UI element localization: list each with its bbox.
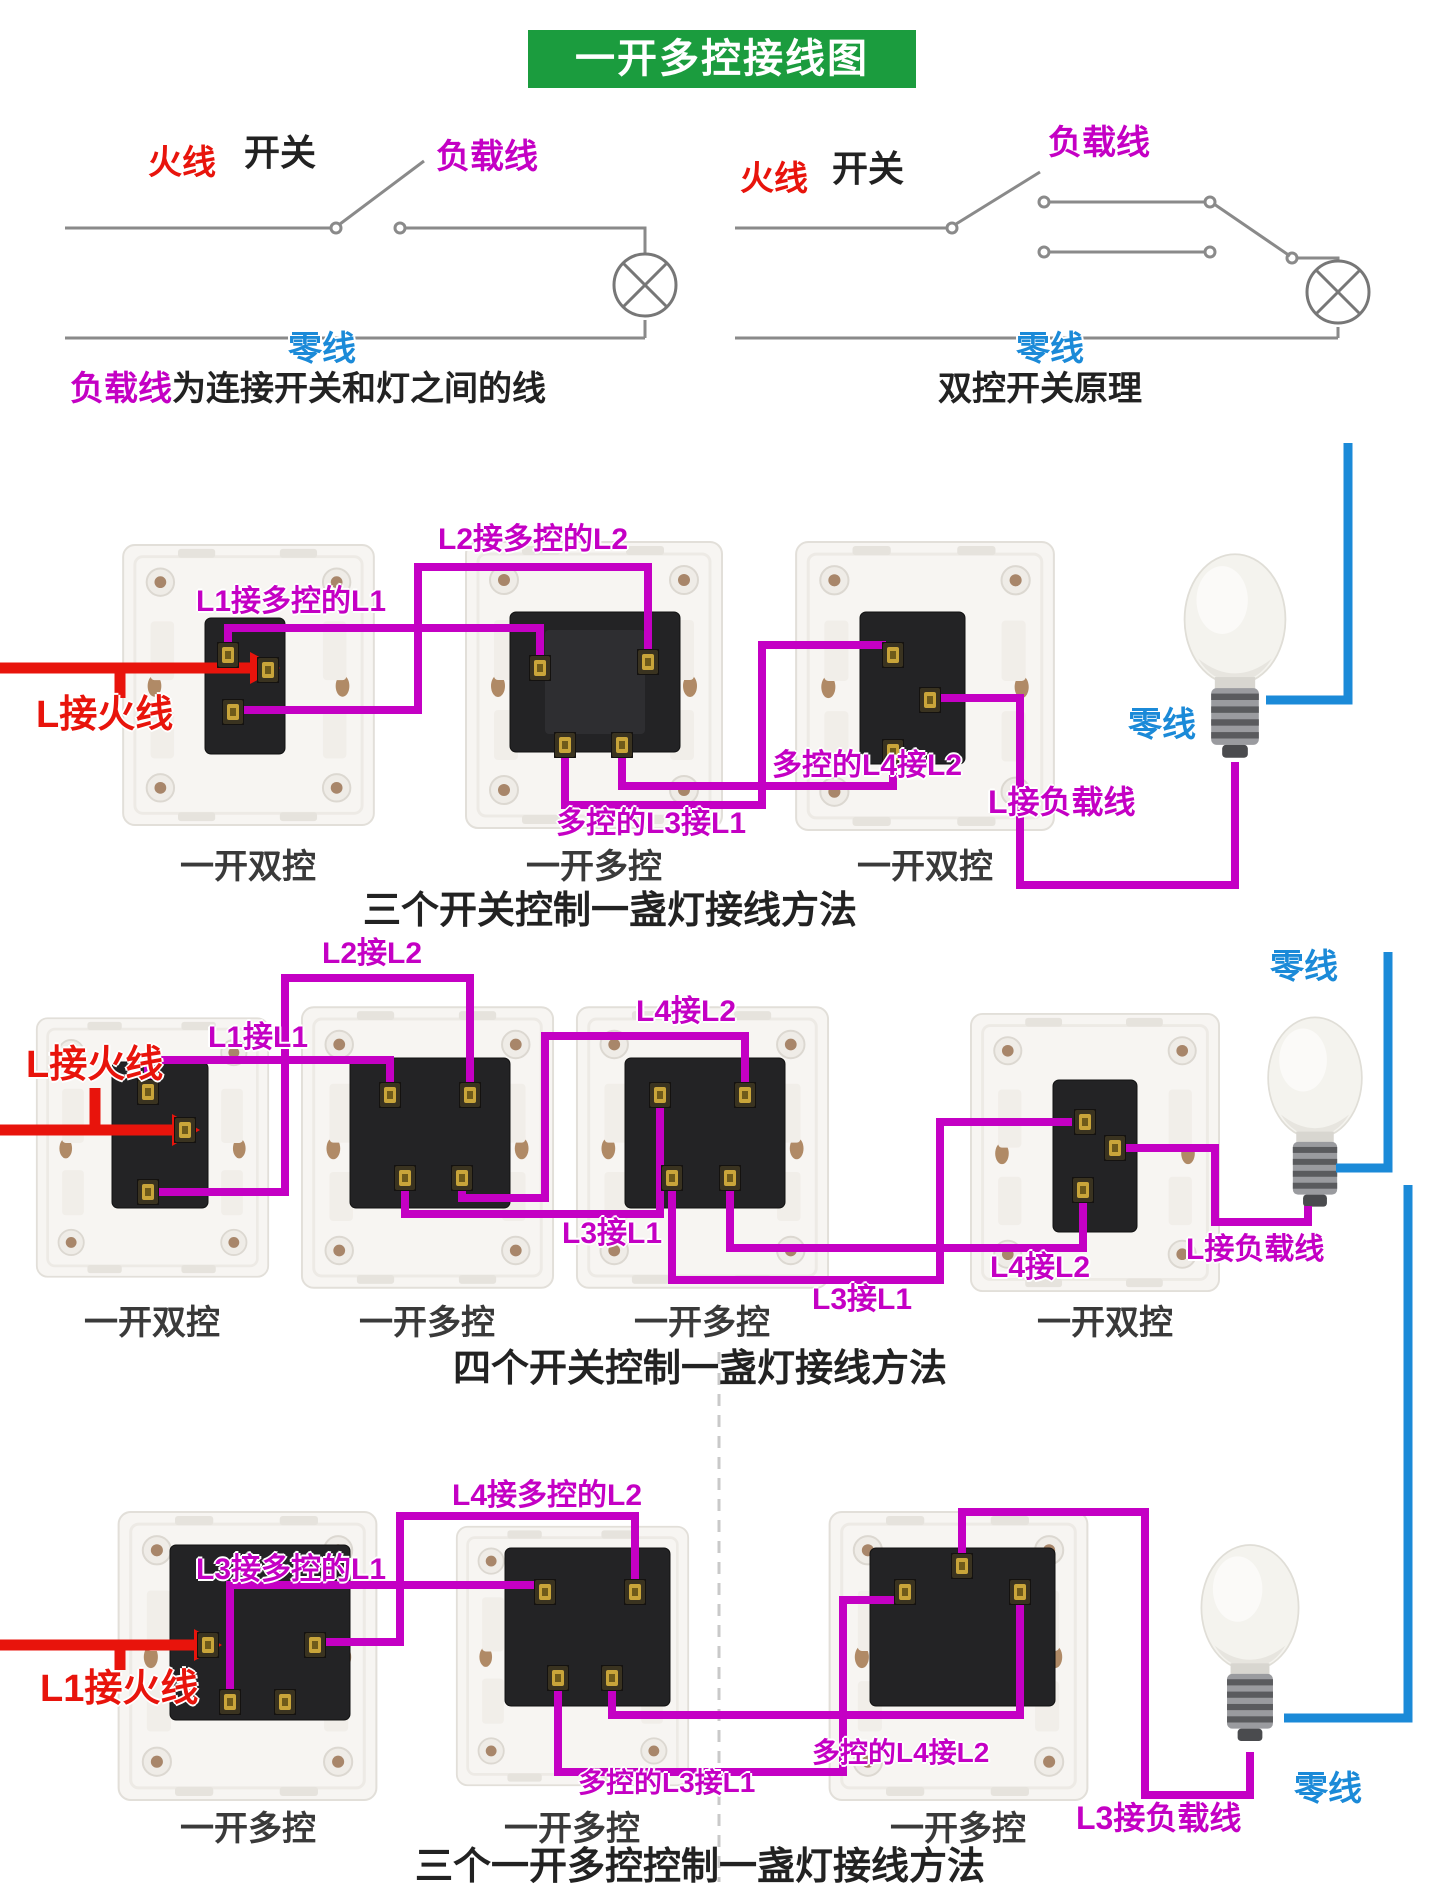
wire-label-l4: L4接多控的L2 <box>452 1480 642 1512</box>
wire-label-load: L3接负载线 <box>1076 1802 1241 1836</box>
wire-label-l3b: 多控的L3接L1 <box>578 1768 755 1797</box>
terminal-icon <box>1074 1109 1096 1135</box>
wire-label-neutral: 零线 <box>1294 1772 1362 1808</box>
switch-caption: 一开双控 <box>84 1306 220 1342</box>
section-caption: 三个开关控制一盏灯接线方法 <box>363 892 857 932</box>
terminal-icon <box>611 732 633 758</box>
bulb-icon <box>1201 1545 1298 1741</box>
switch-caption: 一开多控 <box>504 1812 640 1848</box>
terminal-icon <box>1104 1135 1126 1161</box>
schematic-right-caption: 双控开关原理 <box>938 372 1142 408</box>
neutral-wire <box>1266 443 1348 700</box>
terminal-icon <box>601 1665 623 1691</box>
terminal-icon <box>274 1689 296 1715</box>
wire-label-load: L接负载线 <box>988 786 1136 820</box>
wire-label-l3: 多控的L3接L1 <box>556 808 746 840</box>
wire-label-l2: L2接多控的L2 <box>438 524 628 556</box>
wire-label-l2: L2接L2 <box>322 938 422 970</box>
lamp-symbol <box>614 254 676 316</box>
terminal-icon <box>304 1632 326 1658</box>
switch-module <box>860 612 965 764</box>
schematic-left-load-label: 负载线 <box>436 140 538 176</box>
terminal-icon <box>649 1082 671 1108</box>
terminal-icon <box>394 1165 416 1191</box>
wire-label-load: L接负载线 <box>1186 1234 1324 1266</box>
terminal-icon <box>547 1665 569 1691</box>
terminal-icon <box>137 1179 159 1205</box>
terminal-icon <box>734 1082 756 1108</box>
wire-label-l4b: L4接L2 <box>990 1252 1090 1284</box>
terminal-icon <box>379 1082 401 1108</box>
page-title: 一开多控接线图 <box>528 30 916 88</box>
schematic-right-switch-label: 开关 <box>832 150 904 188</box>
wire-label-l4b: 多控的L4接L2 <box>812 1738 989 1767</box>
wiring-diagram-page: 一开多控接线图 火线 开关 负载线 零线 负载线为连接开关和灯之间的线 火线 开… <box>0 0 1440 1888</box>
wire-label-live: L接火线 <box>26 1046 163 1086</box>
schematic-two-way-switch <box>735 172 1369 338</box>
wire-label-l3: L3接多控的L1 <box>196 1554 386 1586</box>
terminal-icon <box>637 649 659 675</box>
wire-label-l3a: L3接L1 <box>562 1218 662 1250</box>
section-caption: 三个一开多控控制一盏灯接线方法 <box>415 1848 985 1888</box>
switch-module <box>505 1548 670 1706</box>
wire-label-live: L接火线 <box>36 696 173 736</box>
schematic-right-live-label: 火线 <box>740 162 808 198</box>
switch-rocker <box>545 630 645 734</box>
schematic-left-switch-label: 开关 <box>244 134 316 172</box>
switch-caption: 一开多控 <box>180 1812 316 1848</box>
terminal-icon <box>529 655 551 681</box>
wire-label-l4: 多控的L4接L2 <box>772 750 962 782</box>
wire-label-l1: L1接多控的L1 <box>196 586 386 618</box>
switch-caption: 一开双控 <box>857 850 993 886</box>
bulb-icon <box>1268 1017 1362 1206</box>
terminal-icon <box>534 1579 556 1605</box>
schematic-single-switch <box>65 161 676 338</box>
switch-module <box>205 618 285 754</box>
schematic-left-caption: 负载线为连接开关和灯之间的线 <box>70 372 546 408</box>
wire-label-neutral: 零线 <box>1128 708 1196 744</box>
switch-module <box>350 1058 510 1208</box>
schematic-left-live-label: 火线 <box>148 146 216 182</box>
wire-label-l4-top: L4接L2 <box>636 996 736 1028</box>
wire-label-neutral: 零线 <box>1270 950 1338 986</box>
wire-label-l1: L1接L1 <box>208 1022 308 1054</box>
switch-caption: 一开多控 <box>359 1306 495 1342</box>
terminal-icon <box>554 732 576 758</box>
switch-caption: 一开多控 <box>634 1306 770 1342</box>
terminal-icon <box>1072 1177 1094 1203</box>
terminal-icon <box>217 642 239 668</box>
terminal-icon <box>894 1579 916 1605</box>
switch-caption: 一开双控 <box>180 850 316 886</box>
terminal-icon <box>1009 1579 1031 1605</box>
terminal-icon <box>661 1165 683 1191</box>
wiring-diagram-canvas <box>0 0 1440 1888</box>
terminal-icon <box>451 1165 473 1191</box>
switch-module <box>625 1058 785 1208</box>
switch-caption: 一开双控 <box>1037 1306 1173 1342</box>
lamp-symbol <box>1307 261 1369 323</box>
terminal-icon <box>719 1165 741 1191</box>
terminal-icon <box>197 1632 219 1658</box>
caption-rest: 为连接开关和灯之间的线 <box>172 370 546 408</box>
terminal-icon <box>222 699 244 725</box>
caption-highlight: 负载线 <box>70 370 172 408</box>
terminal-icon <box>257 657 279 683</box>
terminal-icon <box>624 1579 646 1605</box>
terminal-icon <box>951 1553 973 1579</box>
wire-label-live: L1接火线 <box>40 1670 198 1710</box>
switch-caption: 一开多控 <box>526 850 662 886</box>
bulb-icon <box>1185 554 1286 758</box>
terminal-icon <box>919 687 941 713</box>
section-caption: 四个开关控制一盏灯接线方法 <box>453 1350 947 1390</box>
schematic-right-neutral-label: 零线 <box>1016 332 1084 368</box>
terminal-icon <box>219 1689 241 1715</box>
terminal-icon <box>174 1117 196 1143</box>
terminal-icon <box>459 1082 481 1108</box>
schematic-left-neutral-label: 零线 <box>288 332 356 368</box>
wire-label-l3b: L3接L1 <box>812 1284 912 1316</box>
schematic-right-load-label: 负载线 <box>1048 126 1150 162</box>
switch-caption: 一开多控 <box>890 1812 1026 1848</box>
terminal-icon <box>882 642 904 668</box>
